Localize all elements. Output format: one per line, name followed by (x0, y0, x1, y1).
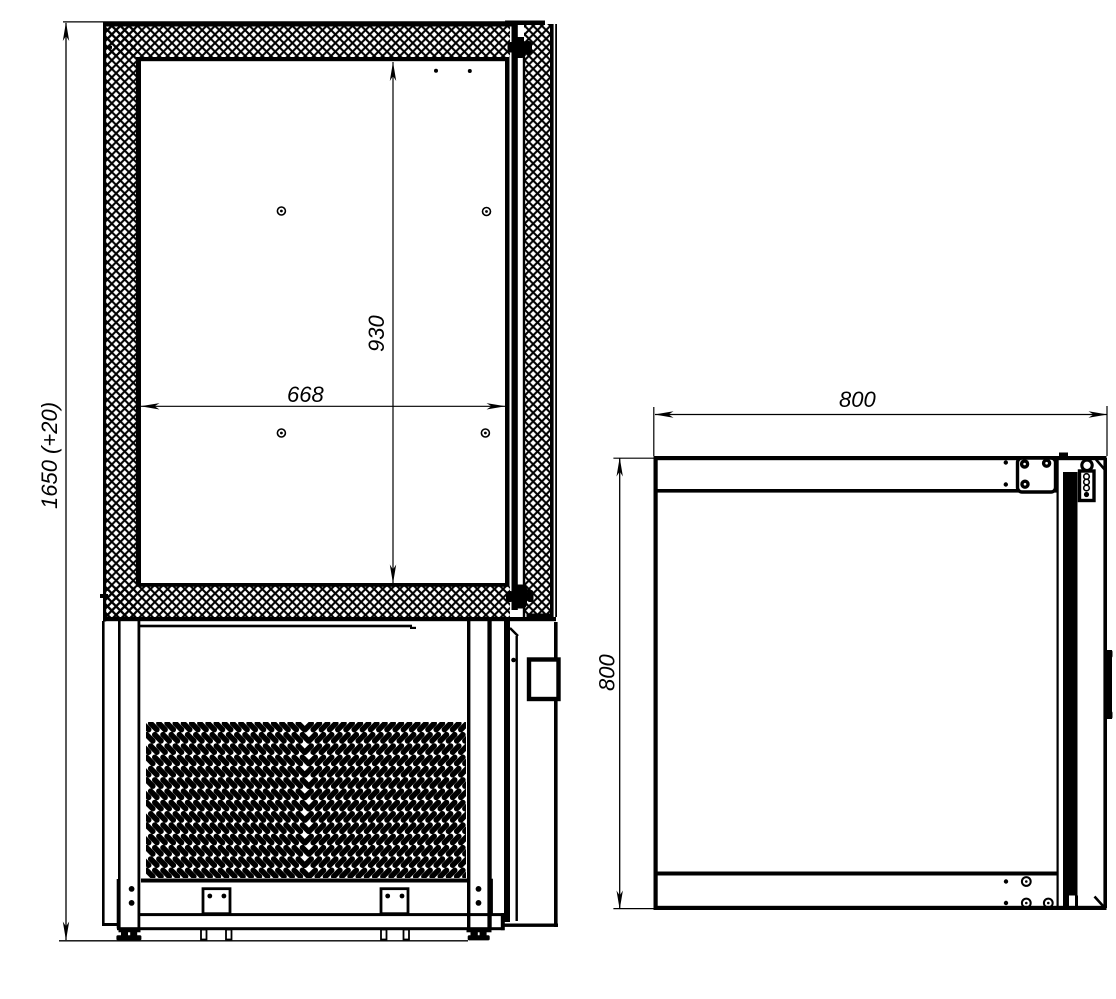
svg-text:1650 (+20): 1650 (+20) (37, 402, 62, 509)
svg-text:668: 668 (287, 382, 324, 407)
svg-text:930: 930 (364, 315, 389, 352)
svg-text:800: 800 (595, 654, 620, 691)
svg-text:800: 800 (839, 387, 876, 412)
